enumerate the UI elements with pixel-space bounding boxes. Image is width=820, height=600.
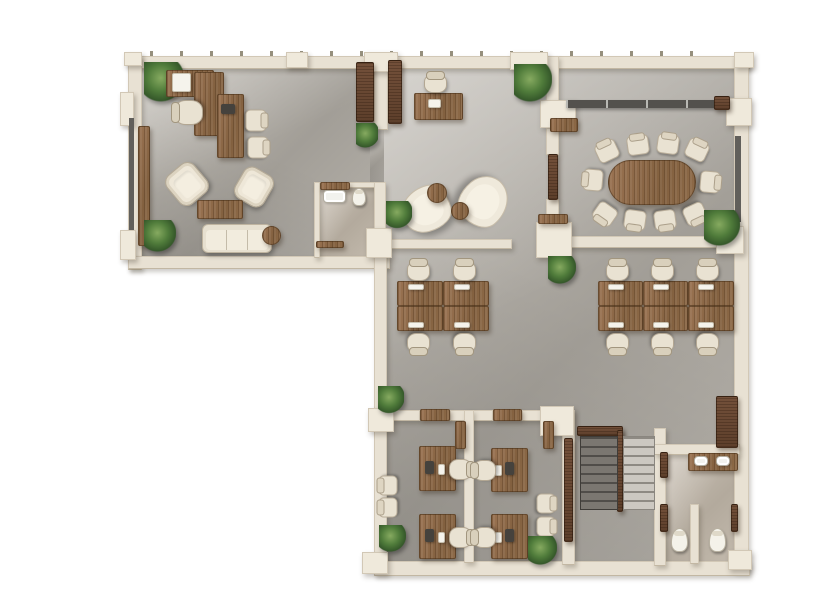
guest-chair	[537, 494, 556, 514]
column	[362, 552, 388, 574]
monitor	[653, 284, 669, 290]
monitor	[454, 284, 470, 290]
floor-plan	[0, 0, 820, 600]
glass-partition	[566, 100, 728, 108]
plant	[379, 525, 406, 552]
conference-door	[548, 154, 558, 200]
plant	[386, 201, 412, 229]
coffee-table	[197, 200, 243, 219]
side-table	[427, 183, 447, 203]
plant	[378, 386, 404, 414]
task-chair	[407, 333, 430, 353]
monitor	[408, 322, 424, 328]
conference-table	[608, 160, 696, 205]
bathroom-cabinet	[716, 396, 738, 448]
conference-chair	[699, 170, 721, 194]
sink	[694, 456, 708, 466]
task-chair	[449, 459, 472, 480]
task-chair	[453, 333, 476, 353]
laptop	[425, 461, 434, 474]
column	[734, 52, 754, 68]
office-cabinet	[455, 421, 466, 449]
column	[120, 230, 136, 260]
office-cabinet	[543, 421, 554, 449]
toilet	[671, 528, 688, 552]
column	[536, 222, 572, 258]
exterior-wall-top	[128, 56, 750, 69]
monitor	[454, 322, 470, 328]
stairs-flight-down	[580, 436, 618, 510]
guest-chair	[248, 137, 269, 159]
task-chair	[651, 333, 674, 353]
laptop	[221, 104, 235, 114]
laptop	[428, 99, 441, 108]
desk-chair	[174, 100, 203, 125]
plant	[548, 256, 576, 284]
guest-chair	[379, 476, 398, 496]
monitor	[698, 284, 714, 290]
stall-door	[660, 504, 668, 532]
stairs-flight-up	[623, 436, 655, 510]
glass-door	[714, 96, 730, 110]
plant	[144, 220, 176, 252]
side-table	[262, 226, 281, 245]
shelf	[316, 241, 344, 248]
guest-chair	[246, 110, 267, 132]
task-chair	[696, 261, 719, 281]
powder-room-wall-right-a	[374, 182, 386, 232]
task-chair	[473, 460, 496, 481]
plant	[514, 64, 552, 102]
monitor	[608, 322, 624, 328]
column	[366, 228, 392, 258]
keyboard	[438, 464, 445, 475]
conference-chair	[626, 134, 651, 157]
side-table	[451, 202, 469, 220]
office-door	[420, 409, 450, 421]
toilet-stall-wall	[690, 504, 699, 564]
plant	[704, 210, 740, 246]
laptop	[425, 529, 434, 542]
keyboard	[438, 532, 445, 543]
console-table	[538, 214, 568, 224]
column	[124, 52, 142, 66]
task-chair	[651, 261, 674, 281]
laptop	[505, 462, 514, 475]
conference-chair	[623, 209, 648, 232]
office-door	[493, 409, 522, 421]
task-chair	[606, 333, 629, 353]
stall-door	[731, 504, 738, 532]
keyboard	[495, 532, 502, 543]
guest-chair	[379, 498, 398, 518]
powder-room-toilet	[352, 188, 366, 206]
shelf	[320, 182, 350, 190]
shelf	[550, 118, 578, 132]
conference-chair	[582, 168, 604, 192]
plant	[356, 123, 378, 149]
bathroom-door	[660, 452, 668, 478]
powder-room-sink	[323, 190, 346, 203]
task-chair	[453, 261, 476, 281]
conference-left-wall-b	[546, 128, 559, 155]
task-chair	[606, 261, 629, 281]
wardrobe	[356, 62, 374, 122]
task-chair	[449, 527, 472, 548]
window	[129, 118, 134, 230]
conference-chair	[656, 133, 681, 156]
monitor	[608, 284, 624, 290]
monitor	[408, 284, 424, 290]
task-chair	[473, 527, 496, 548]
desk-chair	[424, 74, 447, 93]
guest-chair	[537, 517, 556, 537]
printer	[172, 73, 191, 92]
column	[286, 52, 308, 68]
task-chair	[407, 261, 430, 281]
laptop	[505, 529, 514, 542]
monitor	[653, 322, 669, 328]
wardrobe	[388, 60, 402, 124]
conference-chair	[653, 209, 678, 232]
monitor	[698, 322, 714, 328]
exterior-wall-right	[734, 56, 749, 572]
sink	[716, 456, 730, 466]
plant	[528, 536, 557, 565]
wing-bottom-wall	[128, 256, 390, 269]
toilet	[709, 528, 726, 552]
keyboard	[495, 465, 502, 476]
wood-panel	[564, 438, 573, 542]
lounge-office-wall	[388, 239, 512, 249]
task-chair	[696, 333, 719, 353]
column	[728, 550, 752, 570]
